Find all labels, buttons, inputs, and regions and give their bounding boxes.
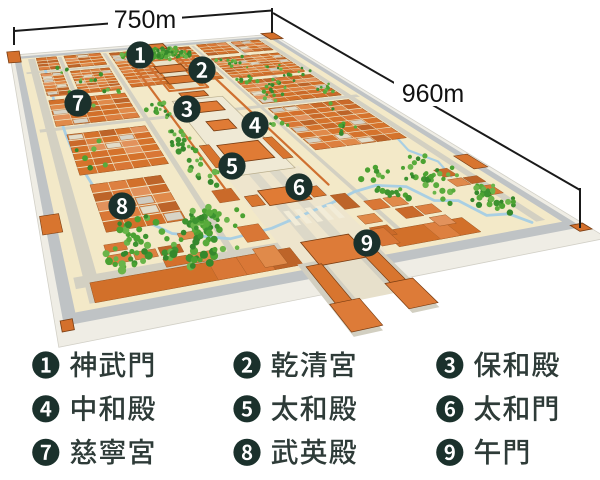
- svg-text:960m: 960m: [402, 80, 465, 108]
- svg-text:750m: 750m: [114, 6, 177, 34]
